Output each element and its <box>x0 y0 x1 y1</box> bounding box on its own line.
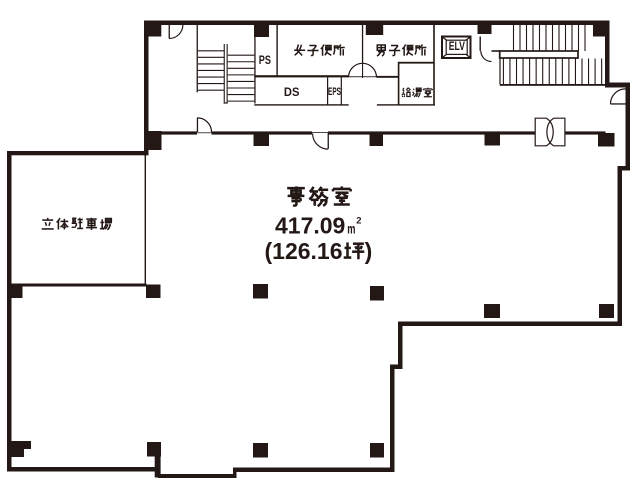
svg-text:): ) <box>365 238 373 264</box>
svg-text:m: m <box>347 221 355 237</box>
svg-text:(126.16: (126.16 <box>265 238 343 264</box>
svg-text:PS: PS <box>259 53 271 67</box>
svg-text:417.09: 417.09 <box>275 213 345 239</box>
svg-text:DS: DS <box>284 85 300 99</box>
svg-text:2: 2 <box>356 216 361 227</box>
svg-text:ELV: ELV <box>449 39 465 53</box>
svg-text:EPS: EPS <box>328 86 341 98</box>
